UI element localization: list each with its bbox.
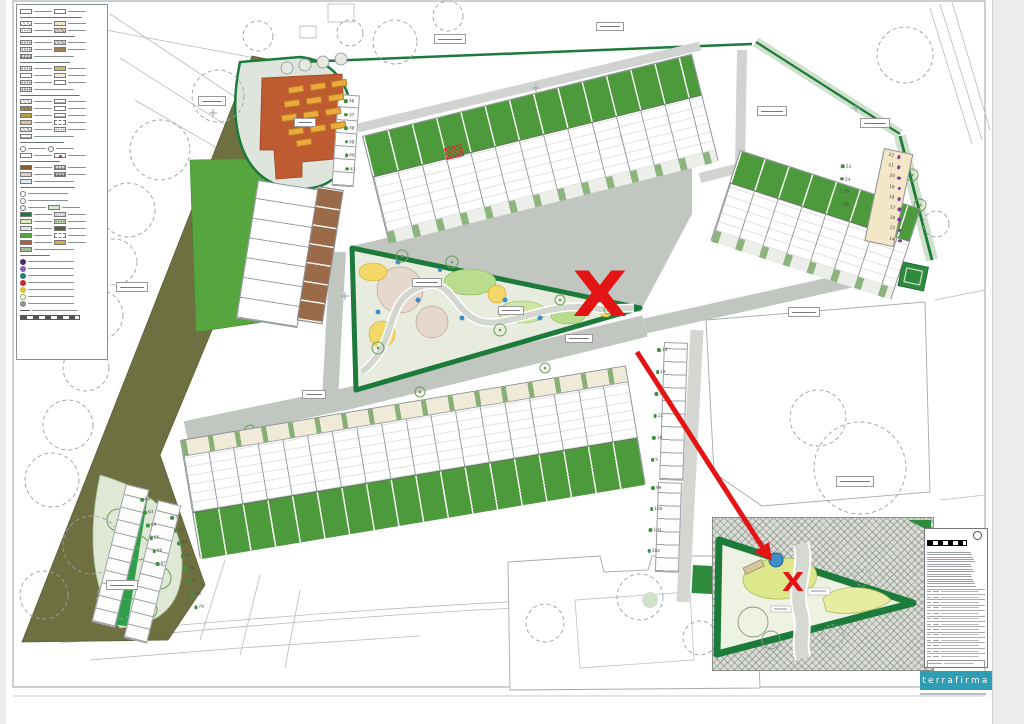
- greeked-text: [927, 586, 976, 587]
- greeked-text: [927, 581, 974, 582]
- plot-number-text: 62: [145, 498, 151, 501]
- greeked-text: [28, 296, 74, 297]
- legend-panel: [16, 4, 108, 360]
- greeked-text: [944, 663, 974, 664]
- plot-number-text: 14: [661, 349, 667, 352]
- plot-number-text: 21: [888, 164, 894, 168]
- greeked-text: [34, 122, 52, 123]
- legend-swatch: [20, 120, 32, 125]
- plot-number: 36: [344, 99, 356, 104]
- plot-dot: [650, 507, 654, 511]
- plot-dot: [656, 370, 660, 374]
- greeked-text: [28, 261, 74, 262]
- legend-dot: [20, 273, 26, 279]
- greeked-text: [68, 11, 86, 12]
- greeked-text: [68, 82, 86, 83]
- plot-number: 12: [654, 392, 666, 396]
- legend-row: [20, 272, 104, 279]
- greeked-text: [28, 268, 74, 269]
- greeked-text: [68, 155, 86, 156]
- plot-dot: [898, 239, 902, 243]
- greeked-text: [68, 30, 86, 31]
- annotation-label: [498, 306, 524, 315]
- greeked-text: [68, 75, 86, 76]
- plot-number-text: 77: [192, 580, 198, 583]
- plot-number: 21: [888, 163, 901, 169]
- plot-number: 23: [840, 164, 853, 170]
- greeked-text: [927, 651, 931, 652]
- plot-number-text: 64: [151, 523, 157, 526]
- plot-number: 38: [344, 126, 356, 131]
- legend-swatch: [48, 205, 60, 210]
- plot-number-text: 25: [843, 190, 849, 194]
- plot-number: 77: [187, 579, 199, 584]
- greeked-text: [933, 613, 939, 614]
- greeked-text: [34, 249, 74, 250]
- greeked-text: [933, 602, 939, 603]
- notes-paragraph: [927, 574, 985, 586]
- plot-number: 79: [194, 605, 206, 610]
- plot-dot: [897, 218, 901, 222]
- greeked-text: [933, 651, 939, 652]
- parking-bar: [331, 79, 348, 88]
- legend-swatch: [20, 198, 26, 204]
- legend-row: [20, 27, 104, 34]
- plot-number-text: 39: [349, 141, 355, 144]
- greeked-text: [34, 30, 52, 31]
- annotation-label: [565, 334, 593, 343]
- plot-dot: [143, 511, 147, 515]
- greeked-text: [34, 42, 52, 43]
- plot-number-text: 79: [198, 605, 204, 608]
- plot-number: 99: [651, 486, 663, 490]
- greeked-text: [34, 23, 52, 24]
- plot-number: 14: [657, 348, 669, 352]
- plot-number: 20: [888, 174, 901, 180]
- greeked-text: [927, 634, 931, 635]
- greeked-text: [927, 645, 931, 646]
- greeked-text: [34, 155, 52, 156]
- plot-number: 76: [184, 566, 196, 571]
- plot-number: 73: [173, 528, 185, 533]
- greeked-text: [68, 122, 86, 123]
- greeked-text: [941, 656, 979, 657]
- greeked-text: [110, 585, 134, 586]
- parking-bar: [296, 138, 313, 147]
- plot-number: 66: [152, 548, 164, 553]
- legend-row: [20, 293, 104, 300]
- greeked-text: [600, 26, 620, 27]
- plot-number: 74: [177, 541, 189, 546]
- annotation-label: [294, 118, 316, 127]
- legend-swatch: [54, 240, 66, 245]
- annotation-label: [836, 476, 874, 487]
- greeked-text: [927, 597, 931, 598]
- greeked-text: [34, 49, 52, 50]
- greeked-text: [927, 624, 931, 625]
- plot-number: 75: [180, 554, 192, 559]
- legend-swatch: [54, 219, 66, 224]
- greeked-text: [20, 161, 60, 163]
- legend-swatch: [20, 219, 32, 224]
- plot-dot: [651, 458, 655, 462]
- revision-table: [927, 589, 985, 659]
- greeked-text: [68, 214, 86, 215]
- greeked-text: [28, 282, 74, 283]
- title-block: [924, 528, 988, 668]
- plot-dot: [648, 528, 652, 532]
- greeked-text: [927, 571, 974, 572]
- legend-row: [20, 119, 104, 126]
- greeked-text: [927, 613, 931, 614]
- plot-dot: [344, 140, 348, 144]
- plot-dot: [897, 197, 901, 201]
- plot-number: 100: [650, 507, 666, 512]
- legend-row: [20, 246, 104, 253]
- greeked-text: [840, 481, 870, 482]
- scale-bar-row: [927, 531, 985, 550]
- plot-dot: [152, 549, 156, 553]
- greeked-text: [933, 656, 939, 657]
- greeked-text: [941, 645, 979, 646]
- greeked-text: [32, 310, 78, 311]
- plot-dot: [898, 228, 902, 232]
- plot-dot: [187, 580, 191, 584]
- greeked-text: [34, 214, 52, 215]
- legend-swatch: [54, 120, 66, 125]
- legend-swatch: [54, 73, 66, 78]
- north-arrow: [973, 531, 982, 540]
- greeked-text: [927, 656, 931, 657]
- legend-swatch: [54, 106, 66, 111]
- plot-number-text: 72: [175, 516, 181, 519]
- legend-swatch: [54, 113, 66, 118]
- plot-dot: [840, 164, 844, 168]
- legend-red-dot: [59, 155, 62, 158]
- legend-row: [20, 286, 104, 293]
- plot-dot: [897, 186, 901, 190]
- greeked-text: [62, 207, 80, 208]
- greeked-text: [761, 111, 783, 112]
- legend-swatch: [20, 99, 32, 104]
- legend-swatch: [20, 179, 32, 184]
- plot-number-text: 11: [658, 415, 664, 418]
- plot-dot: [149, 536, 153, 540]
- plot-number-text: 26: [843, 203, 849, 207]
- greeked-text: [28, 289, 74, 290]
- legend-row: [20, 204, 104, 211]
- greeked-text: [927, 579, 973, 580]
- legend-swatch: [20, 165, 32, 170]
- plot-dot: [652, 436, 656, 440]
- legend-dot: [20, 259, 26, 265]
- legend-row: [20, 171, 104, 178]
- greeked-text: [28, 200, 68, 201]
- plot-number: 39: [344, 140, 356, 145]
- legend-row: [20, 190, 104, 197]
- greeked-text: [933, 645, 939, 646]
- plot-dot: [897, 176, 901, 180]
- plot-number-text: 66: [157, 549, 163, 552]
- plot-dot: [654, 392, 658, 396]
- legend-row: [20, 314, 104, 321]
- plot-dot: [177, 542, 181, 546]
- legend-row: [20, 98, 104, 105]
- parking-bar: [284, 99, 301, 108]
- legend-swatch: [54, 80, 66, 85]
- greeked-text: [68, 42, 86, 43]
- plot-number-text: 24: [844, 178, 850, 182]
- notes-paragraph: [927, 552, 985, 562]
- greeked-text: [68, 115, 86, 116]
- greeked-text: [68, 23, 86, 24]
- greeked-text: [502, 310, 520, 311]
- plot-dot: [651, 486, 655, 490]
- legend-swatch: [54, 172, 66, 177]
- greeked-text: [941, 624, 979, 625]
- plot-number-text: 17: [889, 206, 895, 210]
- greeked-text: [20, 142, 64, 144]
- legend-swatch: [20, 66, 32, 71]
- plot-number: 40: [345, 153, 357, 158]
- legend-swatch: [20, 28, 32, 33]
- greeked-text: [28, 303, 74, 304]
- legend-row: [20, 39, 104, 46]
- legend-row: [20, 86, 104, 93]
- notes-paragraph: [927, 564, 985, 572]
- plot-number: 17: [889, 205, 902, 211]
- plot-dot: [140, 498, 144, 502]
- greeked-text: [927, 554, 972, 555]
- plot-number-text: 36: [348, 100, 354, 103]
- legend-row: [20, 225, 104, 232]
- legend-row: [20, 279, 104, 286]
- greeked-text: [933, 607, 939, 608]
- plot-number-text: 19: [889, 185, 895, 189]
- greeked-text: [438, 39, 462, 40]
- legend-swatch: [54, 153, 66, 158]
- greeked-text: [68, 235, 86, 236]
- plot-number-text: 100: [654, 508, 662, 511]
- inset-location-marker: X: [782, 570, 804, 596]
- legend-row: [20, 307, 104, 314]
- greeked-text: [927, 591, 931, 592]
- plot-dot: [657, 348, 661, 352]
- greeked-text: [20, 255, 50, 257]
- legend-swatch: [20, 153, 32, 158]
- plot-number: 72: [170, 515, 182, 520]
- plot-number: 19: [889, 184, 902, 190]
- plot-number: 10: [652, 436, 664, 440]
- greeked-text: [927, 602, 931, 603]
- greeked-text: [34, 115, 52, 116]
- titleblock-field: [927, 660, 985, 668]
- greeked-text: [933, 634, 939, 635]
- legend-swatch: [54, 9, 66, 14]
- greeked-text: [941, 602, 979, 603]
- greeked-text: [927, 576, 972, 577]
- legend-dot: [20, 301, 26, 307]
- greeked-text: [927, 640, 931, 641]
- greeked-text: [34, 235, 52, 236]
- greeked-text: [927, 566, 972, 567]
- parking-bar: [288, 85, 305, 94]
- plot-number: 14: [889, 237, 902, 243]
- greeked-text: [68, 221, 86, 222]
- greeked-text: [864, 123, 886, 124]
- greeked-text: [56, 148, 74, 149]
- legend-row: [20, 105, 104, 112]
- legend-row: [20, 79, 104, 86]
- greeked-text: [34, 108, 52, 109]
- legend-swatch: [20, 106, 32, 111]
- legend-row: [20, 112, 104, 119]
- plot-dot: [838, 202, 842, 206]
- plot-number: 37: [344, 113, 356, 118]
- terrafirma-logo: terrafirma: [920, 671, 992, 690]
- greeked-text: [928, 663, 942, 664]
- plot-number-text: 73: [178, 529, 184, 532]
- plot-number: 26: [838, 202, 851, 208]
- plot-number: 62: [140, 497, 152, 502]
- greeked-text: [68, 68, 86, 69]
- greeked-text: [927, 583, 975, 584]
- greeked-text: [28, 207, 46, 208]
- greeked-text: [34, 221, 52, 222]
- greeked-text: [941, 651, 979, 652]
- legend-row: [20, 8, 104, 15]
- greeked-text: [941, 640, 979, 641]
- greeked-text: [34, 174, 52, 175]
- plot-number-text: 65: [154, 536, 160, 539]
- greeked-text: [68, 129, 86, 130]
- greeked-text: [20, 187, 75, 189]
- greeked-text: [927, 564, 971, 565]
- greeked-text: [927, 569, 973, 570]
- plot-number-text: 37: [348, 113, 354, 116]
- greeked-text: [933, 624, 939, 625]
- plot-number-text: 63: [148, 511, 154, 514]
- greeked-text: [34, 167, 52, 168]
- plot-number-text: 102: [652, 550, 660, 553]
- greeked-text: [569, 338, 589, 339]
- legend-dot: [20, 287, 26, 293]
- annotation-label: [198, 96, 226, 106]
- greeked-text: [941, 613, 979, 614]
- plot-number-text: 18: [889, 195, 895, 199]
- legend-row: [20, 218, 104, 225]
- greeked-text: [933, 640, 939, 641]
- annotation-label: [106, 580, 138, 590]
- greeked-text: [306, 394, 322, 395]
- plot-dot: [897, 207, 901, 211]
- plot-number-text: 99: [655, 487, 661, 490]
- greeked-text: [927, 559, 974, 560]
- plot-number-text: 20: [889, 174, 895, 178]
- legend-swatch: [20, 40, 32, 45]
- legend-row: [20, 211, 104, 218]
- plot-number: 22: [888, 153, 901, 159]
- plot-number: 18: [889, 195, 902, 201]
- site-location-marker: X: [572, 264, 627, 326]
- legend-swatch: [54, 127, 66, 132]
- plot-number-text: 101: [653, 529, 661, 532]
- legend-row: [20, 126, 104, 133]
- greeked-text: [34, 89, 74, 90]
- plot-number: 102: [647, 549, 663, 554]
- legend-swatch: [20, 233, 32, 238]
- plot-dot: [344, 126, 348, 130]
- parking-bar: [306, 96, 323, 105]
- legend-swatch: [20, 54, 32, 59]
- legend-swatch: [20, 47, 32, 52]
- plot-number-text: 76: [188, 567, 194, 570]
- plot-dot: [647, 549, 651, 553]
- plot-number: 63: [143, 510, 155, 515]
- greeked-text: [933, 629, 939, 630]
- greeked-text: [20, 17, 82, 19]
- greeked-text: [298, 122, 312, 123]
- plot-number: 13: [656, 370, 668, 374]
- annotation-label: [302, 390, 326, 399]
- greeked-text: [68, 174, 86, 175]
- legend-swatch: [20, 87, 32, 92]
- notes-paragraphs: [927, 552, 985, 587]
- legend-row: [20, 20, 104, 27]
- plot-dot: [345, 167, 349, 171]
- legend-row: [20, 265, 104, 272]
- detail-inset-panel: X: [712, 517, 934, 671]
- plot-dot: [146, 524, 150, 528]
- parking-bar: [310, 82, 327, 91]
- greeked-text: [34, 101, 52, 102]
- greeked-text: [202, 101, 222, 102]
- plot-number: 15: [889, 226, 902, 232]
- plot-dot: [345, 153, 349, 157]
- greeked-text: [927, 618, 931, 619]
- legend-swatch: [20, 146, 26, 152]
- legend-swatch: [54, 40, 66, 45]
- plot-number-text: 23: [845, 165, 851, 169]
- plot-number: 9: [651, 458, 659, 462]
- annotation-label: [788, 307, 820, 317]
- legend-swatch: [20, 127, 32, 132]
- greeked-text: [68, 101, 86, 102]
- annotation-label: [596, 22, 624, 31]
- greeked-text: [933, 597, 939, 598]
- plot-number-text: 40: [349, 154, 355, 157]
- greeked-text: [68, 167, 86, 168]
- plot-number-text: 67: [160, 562, 166, 565]
- greeked-text: [927, 557, 973, 558]
- greeked-text: [34, 11, 52, 12]
- legend-dot: [20, 280, 26, 286]
- greeked-text: [68, 242, 86, 243]
- annotation-label: [412, 278, 442, 287]
- legend-row: [20, 72, 104, 79]
- greeked-text: [927, 552, 971, 553]
- legend-swatch: [20, 240, 32, 245]
- legend-row: [20, 197, 104, 204]
- annotation-label: [757, 106, 787, 116]
- greeked-text: [34, 68, 52, 69]
- plot-number: 41: [345, 167, 357, 172]
- parking-bar: [325, 107, 342, 116]
- greeked-text: [941, 597, 979, 598]
- greeked-text: [68, 49, 86, 50]
- legend-swatch: [54, 226, 66, 231]
- legend-swatch: [20, 21, 32, 26]
